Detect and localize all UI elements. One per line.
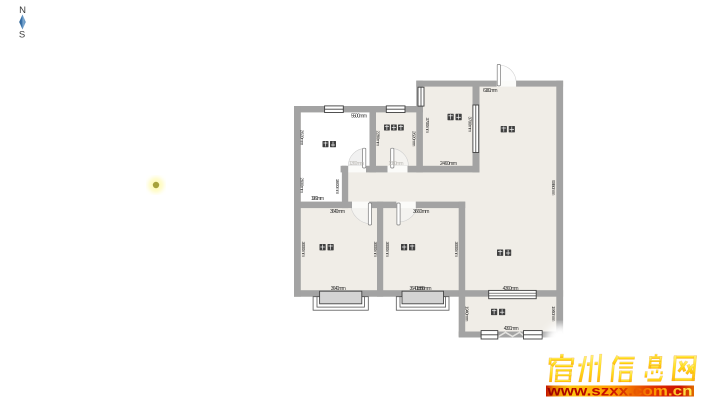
svg-text:3000mm: 3000mm <box>454 242 459 258</box>
svg-text:3640mm: 3640mm <box>330 209 345 215</box>
svg-text:1940mm: 1940mm <box>465 306 470 322</box>
svg-text:3000mm: 3000mm <box>385 242 390 258</box>
svg-text:S: S <box>19 30 25 41</box>
svg-text:4300mm: 4300mm <box>504 326 519 332</box>
svg-text:3660mm: 3660mm <box>413 209 430 215</box>
svg-text:5500mm: 5500mm <box>351 114 367 120</box>
svg-text:N: N <box>19 5 26 16</box>
svg-text:2280mm: 2280mm <box>376 131 381 147</box>
svg-text:2460mm: 2460mm <box>440 161 457 167</box>
svg-text:3700mm: 3700mm <box>468 117 473 133</box>
svg-text:2620mm: 2620mm <box>412 131 417 147</box>
svg-text:2600mm: 2600mm <box>299 178 304 194</box>
svg-text:3000mm: 3000mm <box>301 242 306 258</box>
svg-text:1380mm: 1380mm <box>389 161 404 167</box>
svg-text:4360mm: 4360mm <box>503 286 519 292</box>
svg-text:3640mm: 3640mm <box>331 286 346 292</box>
svg-text:3700mm: 3700mm <box>425 118 430 134</box>
svg-text:1600mm: 1600mm <box>335 179 340 195</box>
svg-text:1360mm: 1360mm <box>349 161 364 167</box>
svg-text:1960mm: 1960mm <box>311 196 324 202</box>
svg-text:6160mm: 6160mm <box>483 88 498 94</box>
svg-text:1940mm: 1940mm <box>551 306 556 322</box>
svg-text:9360mm: 9360mm <box>551 180 556 196</box>
svg-text:2620mm: 2620mm <box>299 130 304 146</box>
svg-text:1360mm: 1360mm <box>417 286 432 292</box>
svg-text:www.szxx.com.cn: www.szxx.com.cn <box>546 384 692 399</box>
svg-text:3000mm: 3000mm <box>373 242 378 258</box>
